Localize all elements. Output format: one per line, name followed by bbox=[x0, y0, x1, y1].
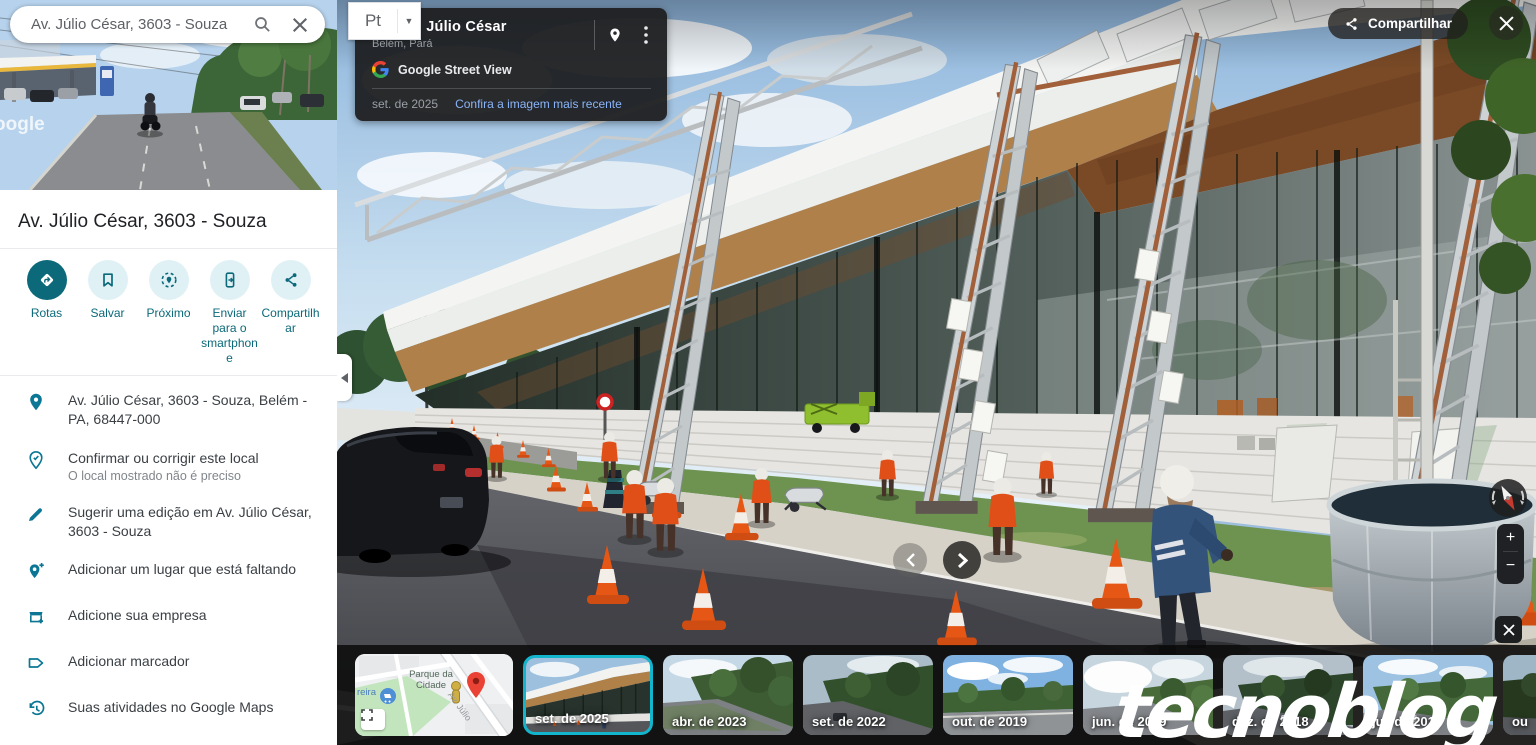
search-input[interactable] bbox=[29, 15, 251, 34]
confirm-location-text: Confirmar ou corrigir este local bbox=[68, 449, 259, 468]
confirm-location-row[interactable]: Confirmar ou corrigir este local O local… bbox=[0, 439, 337, 493]
zoom-in-button[interactable]: + bbox=[1497, 524, 1524, 551]
pan-left-button[interactable] bbox=[893, 543, 927, 577]
place-pin-icon bbox=[26, 392, 46, 412]
bookmark-icon bbox=[98, 270, 118, 290]
action-label: Enviar para o smartphone bbox=[199, 306, 260, 366]
sidebar-collapse-button[interactable] bbox=[337, 354, 352, 401]
move-forward-button[interactable] bbox=[943, 541, 981, 579]
share-icon bbox=[1344, 16, 1359, 32]
timeline-thumbnail-2018[interactable]: dez. de 2018 bbox=[1223, 655, 1353, 735]
thumbnail-date-label: abr. de 2023 bbox=[672, 714, 746, 729]
nearby-button[interactable]: Próximo bbox=[138, 260, 199, 321]
thumbnail-date-label: dez. de 2018 bbox=[1232, 714, 1309, 729]
google-maps-streetview-window: Pt ▼ 382 Av. Júlio César Belém, Pará Goo… bbox=[0, 0, 1536, 745]
place-details-list: Av. Júlio César, 3603 - Souza, Belém - P… bbox=[0, 376, 337, 736]
photos-heading: Fotos bbox=[0, 736, 337, 745]
collapse-arrow-icon bbox=[341, 373, 349, 383]
label-tag-icon bbox=[26, 653, 46, 673]
show-on-map-pin-icon[interactable] bbox=[604, 22, 626, 48]
share-button[interactable]: Compartilhar bbox=[1328, 8, 1468, 39]
pencil-icon bbox=[26, 504, 46, 524]
more-options-icon[interactable] bbox=[635, 22, 657, 48]
svg-text:oogle: oogle bbox=[0, 114, 45, 135]
send-to-phone-icon bbox=[220, 270, 240, 290]
action-label: Próximo bbox=[146, 306, 190, 321]
share-icon bbox=[281, 270, 301, 290]
your-activity-text: Suas atividades no Google Maps bbox=[68, 698, 273, 717]
pin-check-icon bbox=[26, 450, 46, 470]
place-actions: Rotas Salvar Próximo bbox=[0, 249, 337, 375]
thumbnail-date-label: jul. de 2017 bbox=[1372, 714, 1442, 729]
your-activity-row[interactable]: Suas atividades no Google Maps bbox=[0, 688, 337, 734]
map-park-label: Parque da Cidade bbox=[399, 670, 463, 692]
add-label-text: Adicionar marcador bbox=[68, 652, 189, 671]
timeline-thumbnail-jun2019[interactable]: jun. de 2019 bbox=[1083, 655, 1213, 735]
close-icon bbox=[1499, 16, 1514, 31]
add-business-row[interactable]: Adicione sua empresa bbox=[0, 596, 337, 642]
add-business-text: Adicione sua empresa bbox=[68, 606, 207, 625]
address-row[interactable]: Av. Júlio César, 3603 - Souza, Belém - P… bbox=[0, 381, 337, 439]
nearby-icon bbox=[159, 270, 179, 290]
thumbnail-date-label: set. de 2022 bbox=[812, 714, 886, 729]
street-view-brand-label: Google Street View bbox=[398, 63, 512, 77]
place-sidebar: oogle Av. Júlio César, 3603 - Souza Rota… bbox=[0, 0, 337, 745]
storefront-add-icon bbox=[26, 607, 46, 627]
latest-imagery-link[interactable]: Confira a imagem mais recente bbox=[455, 97, 622, 111]
action-label: Salvar bbox=[90, 306, 124, 321]
clear-search-icon[interactable] bbox=[289, 14, 311, 36]
expand-map-button[interactable] bbox=[361, 709, 385, 730]
send-to-phone-button[interactable]: Enviar para o smartphone bbox=[199, 260, 260, 366]
save-button[interactable]: Salvar bbox=[77, 260, 138, 321]
thumbnail-date-label: set. de 2025 bbox=[535, 711, 609, 726]
add-label-row[interactable]: Adicionar marcador bbox=[0, 642, 337, 688]
chevron-left-icon bbox=[905, 552, 916, 568]
timeline-thumbnail-2025[interactable]: set. de 2025 bbox=[523, 655, 653, 735]
close-streetview-button[interactable] bbox=[1489, 6, 1523, 40]
suggest-edit-row[interactable]: Sugerir uma edição em Av. Júlio César, 3… bbox=[0, 493, 337, 551]
imagery-date: set. de 2025 bbox=[372, 97, 438, 111]
timeline-thumbnail-partial[interactable]: ou bbox=[1503, 655, 1536, 735]
close-timeline-button[interactable] bbox=[1495, 616, 1522, 643]
street-view-main: Pt ▼ 382 Av. Júlio César Belém, Pará Goo… bbox=[337, 0, 1536, 745]
timeline-thumbnail-2022[interactable]: set. de 2022 bbox=[803, 655, 933, 735]
thumbnail-date-label: ou bbox=[1512, 714, 1528, 729]
thumbnail-date-label: out. de 2019 bbox=[952, 714, 1027, 729]
share-button-label: Compartilhar bbox=[1368, 16, 1452, 31]
compass-control[interactable] bbox=[1488, 478, 1528, 518]
action-label: Rotas bbox=[31, 306, 62, 321]
action-label: Compartilhar bbox=[260, 306, 321, 336]
add-missing-place-text: Adicionar um lugar que está faltando bbox=[68, 560, 296, 579]
address-text: Av. Júlio César, 3603 - Souza, Belém - P… bbox=[68, 391, 317, 429]
zoom-out-button[interactable]: − bbox=[1497, 552, 1524, 579]
place-title: Av. Júlio César, 3603 - Souza bbox=[0, 190, 337, 248]
timeline-thumbnail-2017[interactable]: jul. de 2017 bbox=[1363, 655, 1493, 735]
zoom-control: + − bbox=[1497, 524, 1524, 584]
timeline-thumbnail-2023[interactable]: abr. de 2023 bbox=[663, 655, 793, 735]
thumbnail-date-label: jun. de 2019 bbox=[1092, 714, 1166, 729]
pin-add-icon bbox=[26, 561, 46, 581]
panel-divider bbox=[372, 88, 651, 89]
share-place-button[interactable]: Compartilhar bbox=[260, 260, 321, 336]
close-icon bbox=[1503, 624, 1515, 636]
directions-button[interactable]: Rotas bbox=[16, 260, 77, 321]
suggest-edit-text: Sugerir uma edição em Av. Júlio César, 3… bbox=[68, 503, 317, 541]
chevron-right-icon bbox=[957, 552, 968, 569]
confirm-location-subtext: O local mostrado não é preciso bbox=[68, 469, 259, 483]
search-icon[interactable] bbox=[251, 14, 273, 36]
chevron-down-icon[interactable]: ▼ bbox=[398, 3, 420, 39]
history-icon bbox=[26, 699, 46, 719]
timeline-map-thumbnail[interactable]: Parque da Cidade reira Av. Júlio bbox=[355, 654, 513, 736]
add-missing-place-row[interactable]: Adicionar um lugar que está faltando bbox=[0, 550, 337, 596]
translate-language-label: Pt bbox=[349, 3, 397, 39]
panel-vertical-divider bbox=[594, 20, 595, 50]
fullscreen-icon bbox=[361, 709, 373, 721]
timeline-thumbnail-out2019[interactable]: out. de 2019 bbox=[943, 655, 1073, 735]
google-logo-icon bbox=[372, 61, 389, 78]
directions-icon bbox=[37, 270, 57, 290]
translate-language-badge[interactable]: Pt ▼ bbox=[348, 2, 421, 40]
map-place-label: reira bbox=[357, 687, 376, 698]
imagery-timeline-bar: Parque da Cidade reira Av. Júlio bbox=[337, 645, 1536, 745]
search-bar bbox=[10, 6, 325, 43]
